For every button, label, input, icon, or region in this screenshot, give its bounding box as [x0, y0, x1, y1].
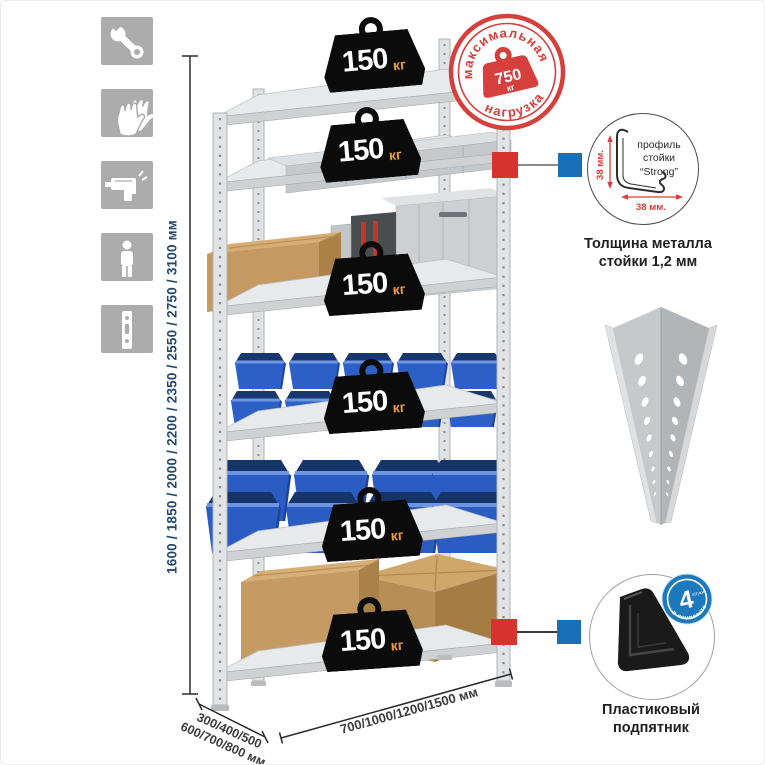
shelf-load-value: 150: [341, 385, 389, 421]
callout-line-top: [516, 164, 560, 166]
shelf-load-value: 150: [337, 133, 385, 170]
post-profile-detail: 38 мм. 38 мм. профиль стойки “Strong”: [587, 113, 699, 225]
upright-profile-icon: [101, 305, 153, 353]
kit-count-badge: 4 штуки в комплекте: [656, 568, 718, 630]
profile-label-3: “Strong”: [640, 166, 678, 178]
foot-caption-line1: Пластиковый: [576, 701, 726, 719]
foot-caption: Пластиковый подпятник: [576, 701, 726, 737]
product-infographic: 1600 / 1850 / 2000 / 2200 / 2350 / 2550 …: [0, 0, 765, 765]
shelf-load-badge: 150кг: [314, 483, 429, 562]
shelf-load-badge: 150кг: [316, 237, 431, 316]
shelf-load-badge: 150кг: [315, 12, 431, 93]
person-icon: [101, 233, 153, 281]
drill-icon: [101, 161, 153, 209]
shelf-load-unit: кг: [388, 146, 402, 163]
shelf-load-badge: 150кг: [311, 102, 427, 183]
max-load-stamp: максимальная нагрузка 750 кг: [434, 0, 580, 145]
profile-label-2: стойки: [643, 152, 675, 164]
callout-line-bottom: [515, 631, 559, 633]
shelf-load-value: 150: [341, 267, 389, 303]
shelf-load-value: 150: [341, 43, 389, 80]
shelf-load-unit: кг: [390, 526, 404, 543]
height-dimension-label: 1600 / 1850 / 2000 / 2200 / 2350 / 2550 …: [165, 220, 180, 574]
profile-caption: Толщина металла стойки 1,2 мм: [573, 235, 723, 271]
shelf-load-unit: кг: [392, 398, 406, 415]
profile-dim-horizontal: 38 мм.: [636, 202, 666, 213]
shelf-load-badge: 150кг: [316, 355, 431, 434]
profile-dim-vertical: 38 мм.: [595, 150, 606, 180]
profile-caption-line1: Толщина металла: [573, 235, 723, 253]
shelf-load-unit: кг: [392, 56, 406, 73]
profile-label-1: профиль: [637, 139, 681, 151]
gloves-icon: [101, 89, 153, 137]
callout-marker-red-top: [492, 152, 518, 178]
shelf-load-value: 150: [339, 513, 387, 549]
profile-caption-line2: стойки 1,2 мм: [573, 253, 723, 271]
callout-marker-blue-top: [558, 153, 582, 177]
angle-post-image: [593, 295, 731, 539]
foot-caption-line2: подпятник: [576, 719, 726, 737]
wrench-icon: [101, 17, 153, 65]
shelf-load-unit: кг: [392, 280, 406, 297]
